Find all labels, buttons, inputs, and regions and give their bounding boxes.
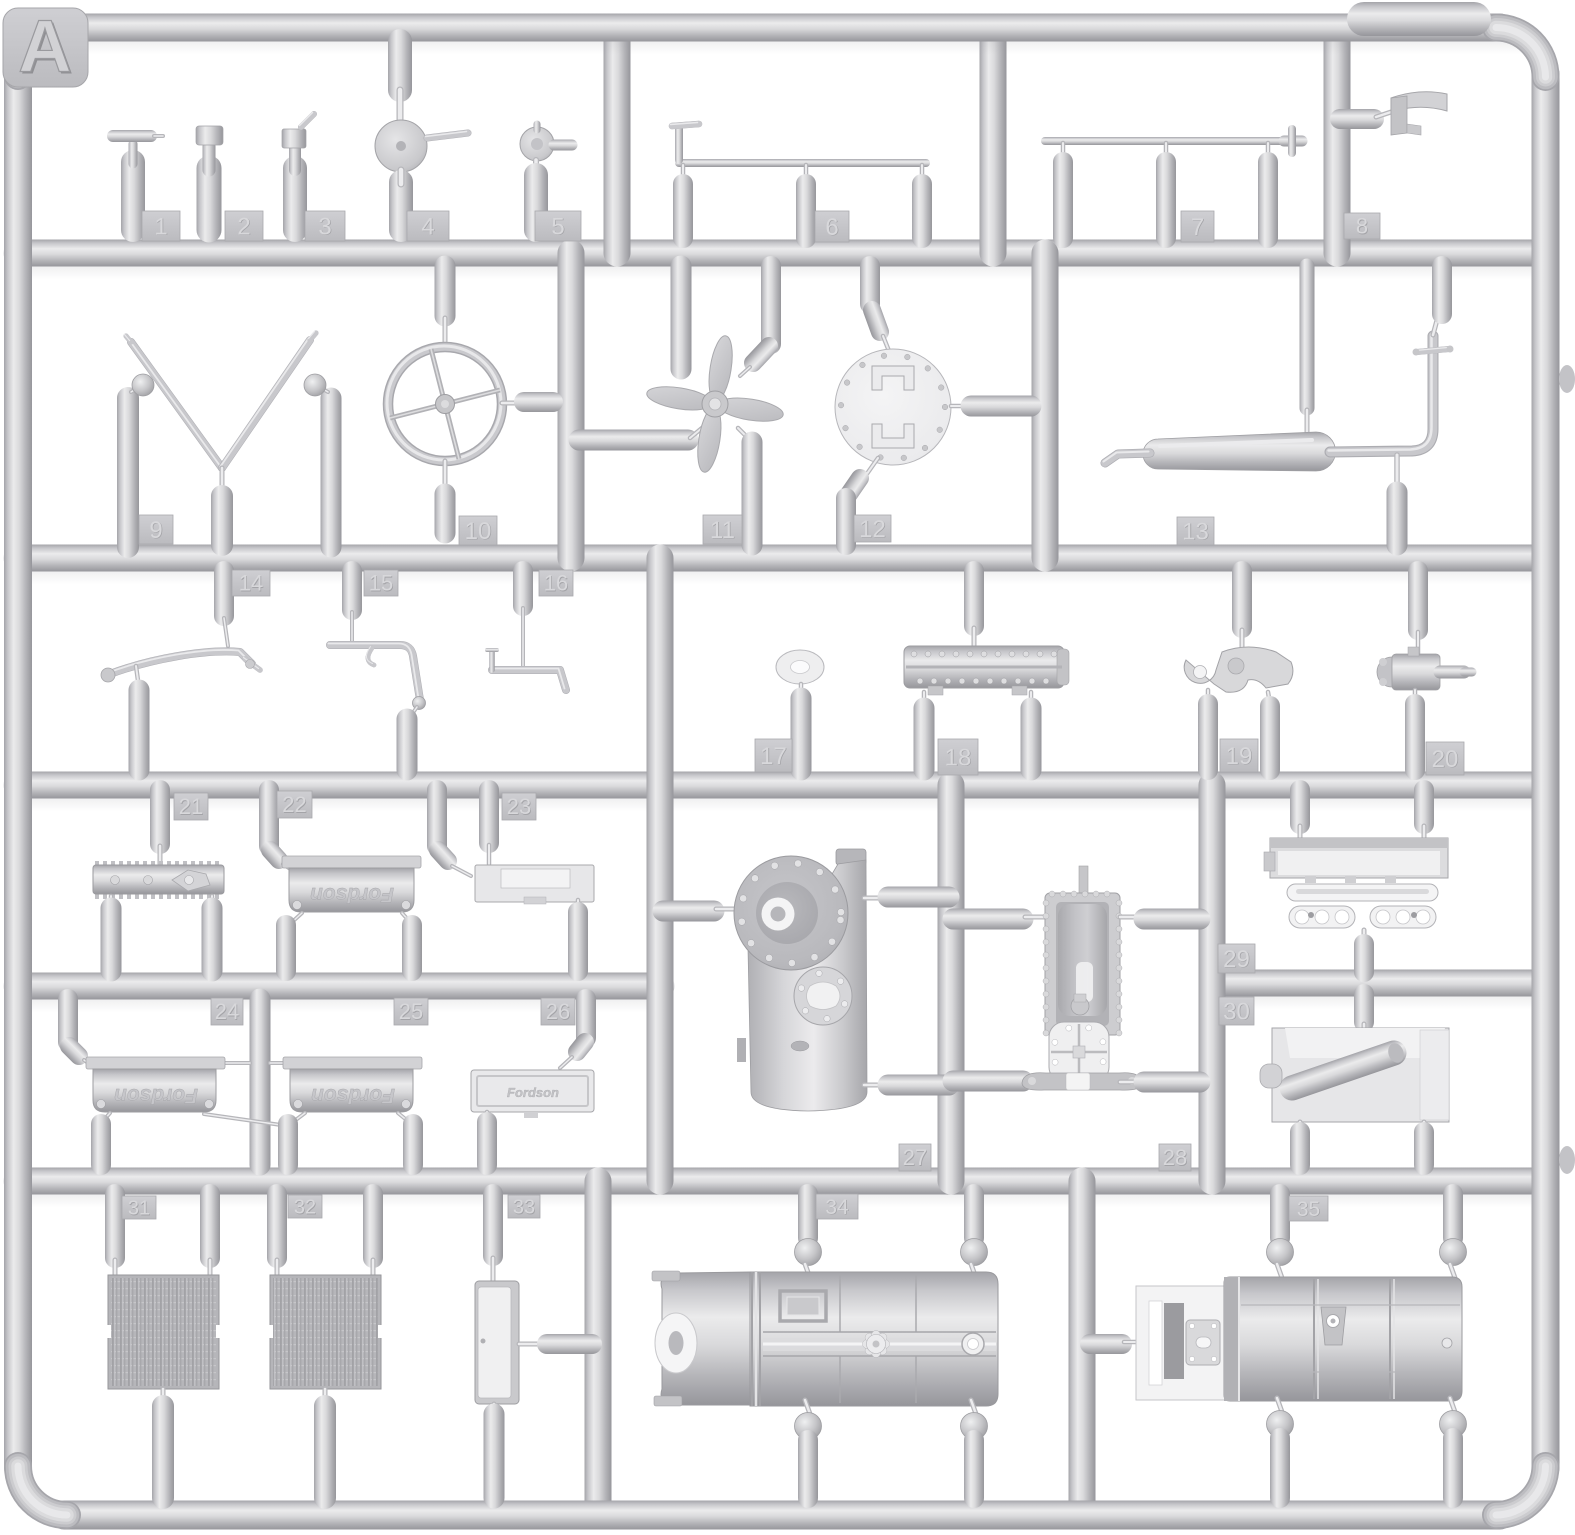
svg-text:Fordson: Fordson bbox=[310, 883, 394, 906]
svg-text:15: 15 bbox=[369, 571, 393, 596]
svg-text:14: 14 bbox=[239, 571, 263, 596]
svg-text:Fordson: Fordson bbox=[114, 1084, 198, 1107]
svg-text:2: 2 bbox=[237, 213, 250, 240]
svg-text:22: 22 bbox=[282, 792, 306, 817]
svg-text:10: 10 bbox=[465, 518, 492, 545]
svg-text:31: 31 bbox=[128, 1198, 150, 1220]
svg-text:23: 23 bbox=[507, 794, 531, 819]
svg-text:25: 25 bbox=[399, 999, 423, 1024]
svg-text:28: 28 bbox=[1163, 1145, 1187, 1170]
svg-text:16: 16 bbox=[544, 571, 568, 596]
svg-text:5: 5 bbox=[551, 213, 564, 240]
svg-text:A: A bbox=[18, 5, 71, 88]
svg-text:34: 34 bbox=[825, 1196, 849, 1219]
svg-text:29: 29 bbox=[1223, 946, 1250, 973]
svg-text:Fordson: Fordson bbox=[507, 1085, 559, 1100]
svg-text:18: 18 bbox=[945, 744, 972, 771]
svg-text:Fordson: Fordson bbox=[311, 1084, 395, 1107]
svg-text:21: 21 bbox=[179, 794, 203, 819]
svg-text:30: 30 bbox=[1223, 998, 1250, 1025]
svg-text:26: 26 bbox=[546, 999, 570, 1024]
svg-text:33: 33 bbox=[513, 1197, 535, 1219]
svg-text:20: 20 bbox=[1432, 746, 1459, 773]
svg-text:8: 8 bbox=[1356, 214, 1368, 239]
svg-text:17: 17 bbox=[760, 743, 787, 770]
svg-text:35: 35 bbox=[1297, 1198, 1320, 1221]
svg-text:32: 32 bbox=[294, 1197, 316, 1219]
svg-text:19: 19 bbox=[1226, 743, 1253, 770]
svg-text:7: 7 bbox=[1191, 214, 1204, 241]
svg-text:27: 27 bbox=[903, 1145, 927, 1170]
svg-text:13: 13 bbox=[1182, 518, 1209, 545]
svg-text:3: 3 bbox=[318, 213, 331, 240]
svg-text:4: 4 bbox=[421, 213, 434, 240]
svg-text:12: 12 bbox=[859, 516, 886, 543]
svg-text:6: 6 bbox=[825, 214, 838, 241]
svg-text:11: 11 bbox=[710, 517, 735, 544]
svg-text:1: 1 bbox=[154, 213, 167, 240]
svg-text:9: 9 bbox=[149, 517, 162, 544]
svg-text:24: 24 bbox=[215, 999, 239, 1024]
